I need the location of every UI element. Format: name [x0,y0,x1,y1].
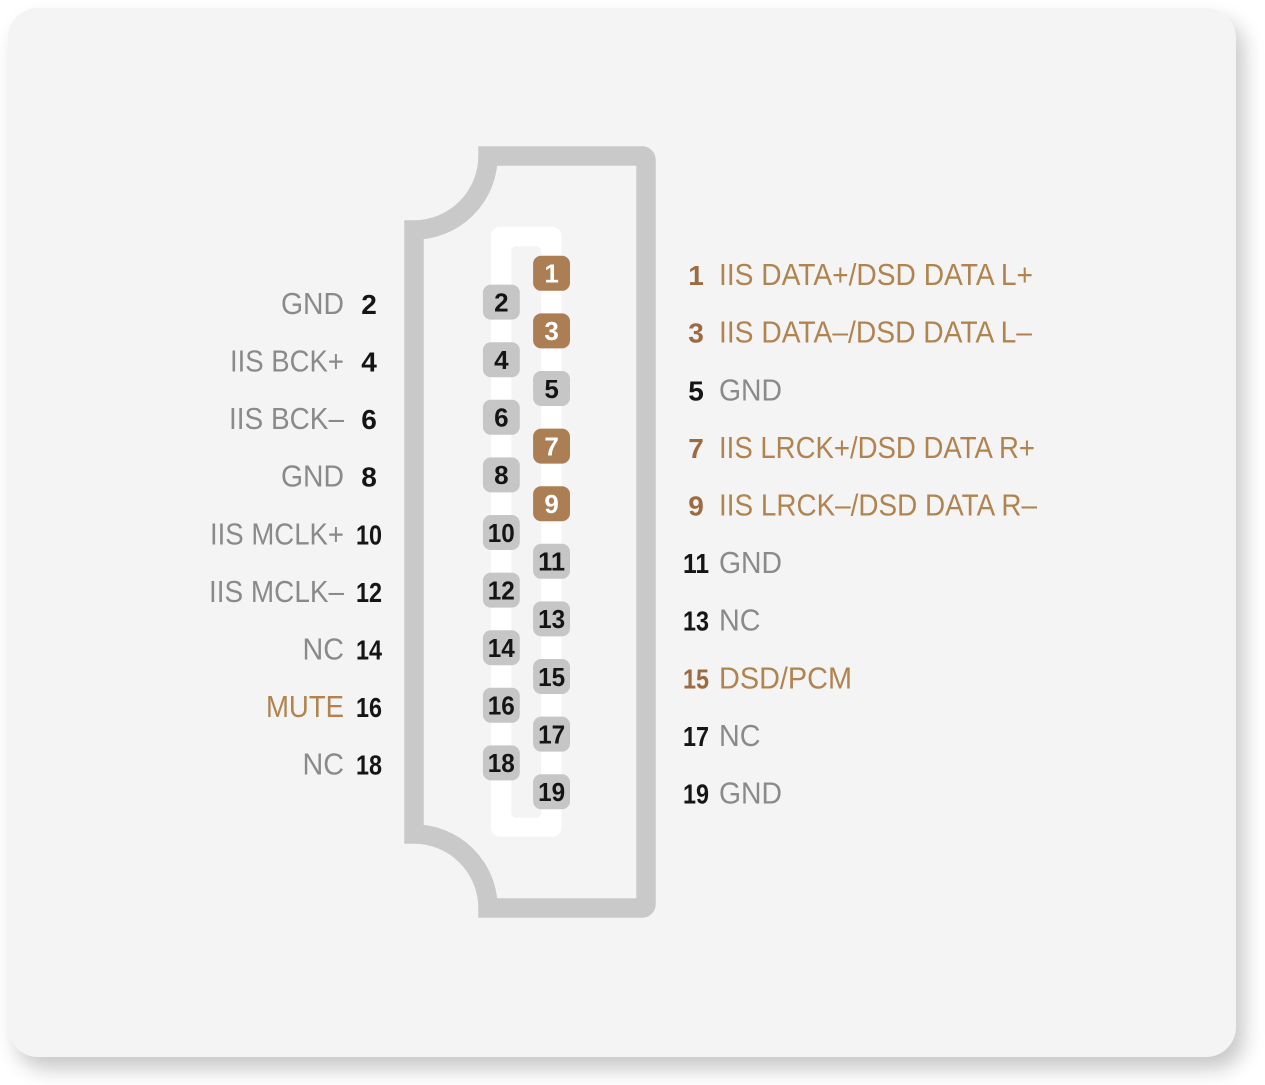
svg-text:IIS LRCK+/DSD DATA R+: IIS LRCK+/DSD DATA R+ [719,430,1035,465]
svg-text:2: 2 [361,289,377,320]
svg-text:2: 2 [494,287,508,317]
svg-text:NC: NC [303,747,345,782]
svg-text:12: 12 [356,577,382,608]
svg-text:10: 10 [488,518,515,548]
svg-text:3: 3 [688,318,704,349]
svg-text:1: 1 [544,259,558,289]
svg-text:NC: NC [719,718,761,753]
svg-text:19: 19 [538,777,565,807]
svg-text:IIS BCK–: IIS BCK– [229,401,345,436]
svg-text:8: 8 [361,462,377,493]
svg-text:8: 8 [494,460,508,490]
svg-text:1: 1 [688,260,704,291]
svg-text:12: 12 [488,575,515,605]
svg-text:4: 4 [494,345,509,375]
svg-text:IIS MCLK–: IIS MCLK– [209,574,345,609]
svg-text:10: 10 [356,519,382,550]
svg-text:NC: NC [719,603,761,638]
svg-text:9: 9 [688,491,704,522]
svg-text:5: 5 [688,375,704,406]
svg-text:6: 6 [494,403,508,433]
svg-text:17: 17 [538,719,565,749]
svg-text:DSD/PCM: DSD/PCM [719,660,852,695]
svg-text:GND: GND [719,776,782,811]
svg-text:GND: GND [281,459,344,494]
svg-text:9: 9 [544,489,558,519]
svg-text:15: 15 [683,663,709,694]
svg-text:MUTE: MUTE [266,689,344,724]
svg-text:19: 19 [683,779,709,810]
svg-text:11: 11 [683,548,709,579]
svg-text:IIS DATA–/DSD DATA L–: IIS DATA–/DSD DATA L– [719,315,1033,350]
svg-text:GND: GND [719,545,782,580]
svg-text:13: 13 [683,606,709,637]
svg-text:6: 6 [361,404,377,435]
svg-text:18: 18 [488,748,515,778]
svg-text:14: 14 [356,635,382,666]
svg-text:5: 5 [544,374,558,404]
svg-text:IIS MCLK+: IIS MCLK+ [210,516,344,551]
svg-text:GND: GND [719,372,782,407]
svg-text:GND: GND [281,286,344,321]
svg-text:11: 11 [538,547,565,577]
svg-text:IIS BCK+: IIS BCK+ [230,344,344,379]
svg-text:3: 3 [544,316,558,346]
svg-text:4: 4 [361,347,377,378]
svg-text:IIS DATA+/DSD DATA L+: IIS DATA+/DSD DATA L+ [719,257,1033,292]
svg-text:IIS LRCK–/DSD DATA R–: IIS LRCK–/DSD DATA R– [719,488,1038,523]
svg-text:7: 7 [688,433,704,464]
svg-text:18: 18 [356,750,382,781]
svg-text:16: 16 [488,691,515,721]
svg-text:15: 15 [538,662,565,692]
svg-text:16: 16 [356,692,382,723]
svg-text:7: 7 [544,431,558,461]
svg-text:17: 17 [683,721,709,752]
svg-text:NC: NC [303,632,345,667]
svg-text:13: 13 [538,604,565,634]
svg-text:14: 14 [488,633,516,663]
